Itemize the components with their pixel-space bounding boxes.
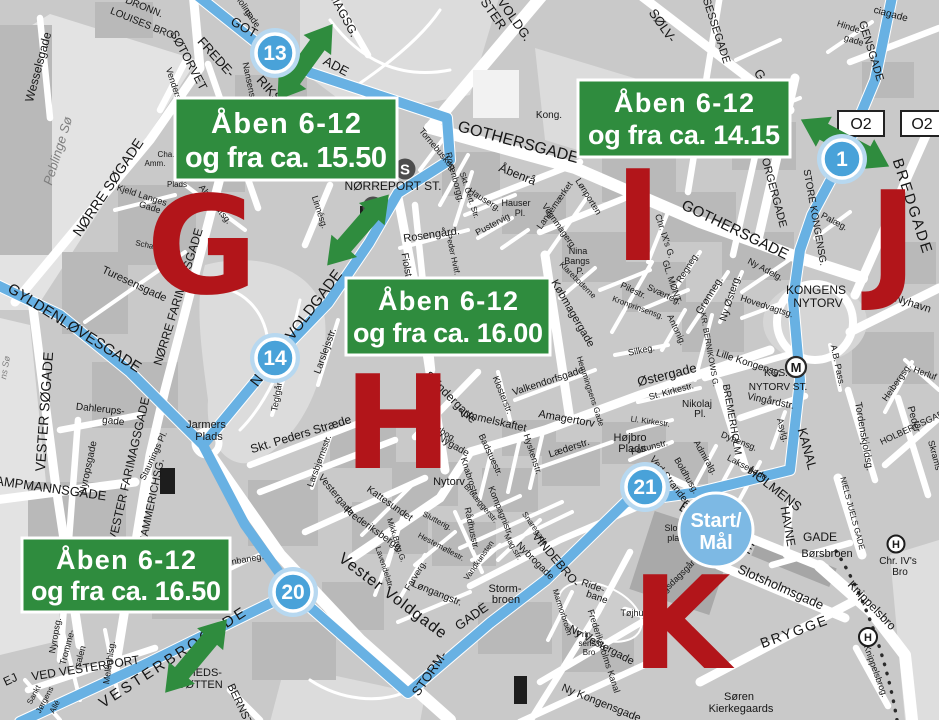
street-label: Bro xyxy=(892,567,908,578)
banner-16-00: Åben 6-12 og fra ca. 16.00 xyxy=(346,278,550,355)
start-finish-marker: Start/ Mål xyxy=(679,493,753,567)
street-label: sens xyxy=(579,639,596,648)
banner-15-50: Åben 6-12 og fra ca. 15.50 xyxy=(175,98,397,180)
zone-letter-g: G xyxy=(146,168,258,326)
marker-number: 21 xyxy=(633,476,657,499)
street-label: Pl. xyxy=(515,208,526,218)
start-finish-label-line1: Start/ xyxy=(690,510,742,532)
o2-road-sign-label: O2 xyxy=(911,116,932,133)
banner-line2: og fra ca. 15.50 xyxy=(185,142,387,174)
route-marker-14: 14 xyxy=(250,333,300,383)
rosenborg-square xyxy=(473,70,519,118)
marker-number: 14 xyxy=(263,347,287,370)
route-marker-13: 13 xyxy=(250,28,300,78)
street-label: Hauser xyxy=(501,198,530,208)
route-marker-20: 20 xyxy=(268,567,318,617)
street-label: Pl. xyxy=(694,409,706,420)
banner-line1: Åben 6-12 xyxy=(614,87,754,118)
street-label: GADE xyxy=(803,530,837,544)
marker-number: 13 xyxy=(263,42,286,65)
start-finish-label-line2: Mål xyxy=(699,531,732,554)
street-label: Børsbroen xyxy=(801,548,852,560)
s-train-icon-letter: S xyxy=(400,162,410,179)
marker-number: 20 xyxy=(281,581,304,604)
street-label: Amm. xyxy=(145,159,166,168)
street-label: Bro xyxy=(583,648,596,657)
banner-line2: og fra ca. 14.15 xyxy=(588,120,780,150)
street-label: Nina xyxy=(569,246,588,256)
zone-letter-i: I xyxy=(615,143,662,290)
route-marker-21: 21 xyxy=(620,462,670,512)
banner-line1: Åben 6-12 xyxy=(56,544,196,575)
harbour-bus-icon-letter: H xyxy=(892,539,900,551)
harbour-bus-icon-letter: H xyxy=(864,632,872,644)
street-label: Kierkegaards xyxy=(709,703,774,715)
zone-letter-j: J xyxy=(861,163,917,315)
banner-line2: og fra ca. 16.00 xyxy=(353,318,543,348)
street-label: broen xyxy=(492,594,520,606)
street-label: Cha. xyxy=(158,150,175,159)
route-marker-1: 1 xyxy=(817,134,867,184)
map-canvas[interactable]: DRONN. LOUISES BRO SØTORVET FREDE- RIKS … xyxy=(0,0,939,720)
street-label: NYTORV ST. xyxy=(749,382,808,393)
street-label: Kong. xyxy=(536,110,562,121)
street-label: Prin- xyxy=(577,630,594,639)
street-label: Plads xyxy=(195,431,223,443)
street-label: KGS. xyxy=(764,368,788,379)
street-label: NYTORV xyxy=(793,296,843,310)
street-label: Chr. IV's xyxy=(879,556,916,567)
banner-14-15: Åben 6-12 og fra ca. 14.15 xyxy=(578,80,790,157)
o2-road-sign-label: O2 xyxy=(850,116,871,133)
banner-16-50: Åben 6-12 og fra ca. 16.50 xyxy=(22,538,230,612)
zone-letter-k: K xyxy=(631,550,735,699)
metro-icon-letter: M xyxy=(791,360,802,375)
zone-letter-h: H xyxy=(344,347,453,499)
banner-line1: Åben 6-12 xyxy=(378,285,518,316)
street-label: Jarmers xyxy=(186,419,226,431)
banner-line1: Åben 6-12 xyxy=(211,107,361,140)
marker-number: 1 xyxy=(836,148,848,171)
banner-line2: og fra ca. 16.50 xyxy=(31,576,221,606)
street-label: KONGENS xyxy=(786,283,846,297)
